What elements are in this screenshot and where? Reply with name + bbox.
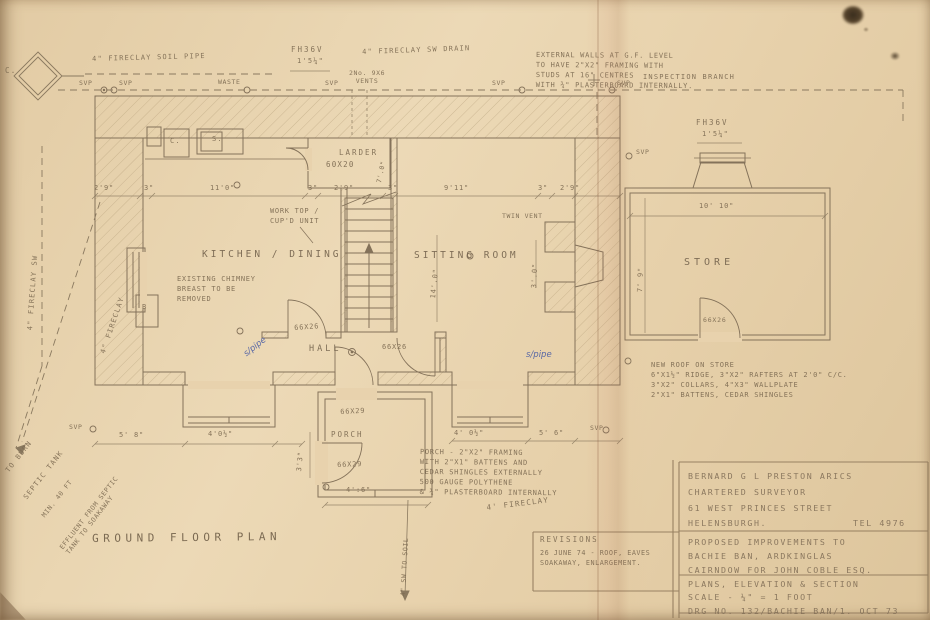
surveyor-telephone: TEL 4976 bbox=[853, 517, 906, 530]
larder-size-label: 60X20 bbox=[326, 160, 355, 170]
cesspit-node-label: C. bbox=[5, 66, 16, 76]
dim-label: 5' 6" bbox=[539, 429, 564, 438]
svp-label: SVP bbox=[492, 79, 506, 87]
porch-construction-note: PORCH - 2"X2" FRAMING WITH 2"X1" BATTENS… bbox=[420, 448, 558, 499]
dim-label: 2'9" bbox=[560, 184, 580, 193]
room-label-sitting: SITTING ROOM bbox=[414, 250, 519, 262]
dim-label: 7' 9" bbox=[636, 267, 646, 292]
revisions-entry: 26 JUNE 74 - ROOF, EAVES SOAKAWAY, ENLAR… bbox=[540, 549, 650, 569]
fixture-label-sink: S. bbox=[212, 135, 223, 144]
dim-label: 3" bbox=[308, 184, 318, 193]
dim-label: 9'11" bbox=[444, 184, 469, 193]
room-label-larder: LARDER bbox=[339, 148, 378, 158]
dim-label: 5' 8" bbox=[119, 431, 144, 440]
room-label-hall: HALL bbox=[309, 344, 341, 355]
svp-label: SVP bbox=[69, 423, 83, 431]
surveyor-town: HELENSBURGH. bbox=[688, 517, 767, 530]
chimney-removal-note: EXISTING CHIMNEY BREAST TO BE REMOVED bbox=[177, 275, 256, 305]
surveyor-role: CHARTERED SURVEYOR bbox=[688, 486, 807, 499]
room-label-porch: PORCH bbox=[331, 430, 364, 440]
room-label-kitchen: KITCHEN / DINING bbox=[202, 249, 342, 261]
inspection-branch-label: INSPECTION BRANCH bbox=[643, 73, 735, 82]
svp-label: SVP bbox=[119, 79, 133, 87]
drawing-sheet: C. 4" FIRECLAY SOIL PIPE SVP SVP WASTE F… bbox=[0, 0, 930, 620]
flue-fh36v-label: FH36V bbox=[291, 45, 324, 55]
dim-label: 3" bbox=[388, 184, 398, 193]
dim-label: 11'0" bbox=[210, 184, 235, 193]
svp-label: SVP bbox=[79, 79, 93, 87]
dim-label: 3'.0" bbox=[530, 263, 540, 289]
svp-label: SVP bbox=[617, 79, 631, 87]
dim-label: 4'0½" bbox=[208, 430, 233, 439]
revisions-title: REVISIONS bbox=[540, 535, 599, 545]
door-size-label: 66X29 bbox=[337, 460, 362, 470]
drawing-description: PLANS, ELEVATION & SECTION SCALE - ¼" = … bbox=[688, 578, 899, 618]
fixture-label-cooker: C. bbox=[170, 137, 181, 146]
door-size-label: 66X26 bbox=[382, 343, 407, 352]
door-size-label: 66X26 bbox=[703, 316, 727, 324]
door-size-label: 66X29 bbox=[340, 407, 366, 417]
svp-label: SVP bbox=[590, 424, 604, 432]
floor-plan-linework bbox=[0, 0, 930, 620]
surveyor-name: BERNARD G L PRESTON ARICS bbox=[688, 470, 853, 483]
plan-title: GROUND FLOOR PLAN bbox=[92, 530, 281, 546]
flue-dim-label: 1'5¼" bbox=[297, 57, 324, 66]
dim-label: 2'9" bbox=[334, 184, 354, 193]
store-roof-note: NEW ROOF ON STORE 6"X1½" RIDGE, 3"X2" RA… bbox=[651, 361, 848, 401]
dim-label: 4' 0½" bbox=[454, 429, 484, 438]
twin-vent-label: TWIN VENT bbox=[502, 212, 543, 220]
dim-label: 2'9" bbox=[94, 184, 114, 193]
surveyor-address: 61 WEST PRINCES STREET bbox=[688, 502, 833, 515]
flue-fh36v-label: FH36V bbox=[696, 118, 729, 128]
flue-dim-label: 1'5¼" bbox=[702, 130, 729, 139]
external-walls-note: EXTERNAL WALLS AT G.F. LEVEL TO HAVE 2"X… bbox=[536, 51, 694, 92]
svp-label: SVP bbox=[325, 79, 339, 87]
room-label-store: STORE bbox=[684, 256, 734, 269]
spipe-ink-note: s/pipe bbox=[526, 350, 552, 361]
project-description: PROPOSED IMPROVEMENTS TO BACHIE BAN, ARD… bbox=[688, 535, 873, 577]
fixture-label-boiler: B bbox=[142, 303, 147, 312]
vents-label: 2No. 9X6 VENTS bbox=[349, 69, 385, 86]
svp-label: SVP bbox=[636, 148, 650, 156]
dim-label: 3" bbox=[144, 184, 154, 193]
door-size-label: 66X26 bbox=[294, 322, 320, 333]
waste-label: WASTE bbox=[218, 78, 241, 86]
dim-label: 3" bbox=[538, 184, 548, 193]
dim-label: 10' 10" bbox=[699, 202, 734, 211]
dim-label: 4':6" bbox=[346, 486, 371, 495]
worktop-note: WORK TOP / CUP'D UNIT bbox=[270, 207, 319, 227]
